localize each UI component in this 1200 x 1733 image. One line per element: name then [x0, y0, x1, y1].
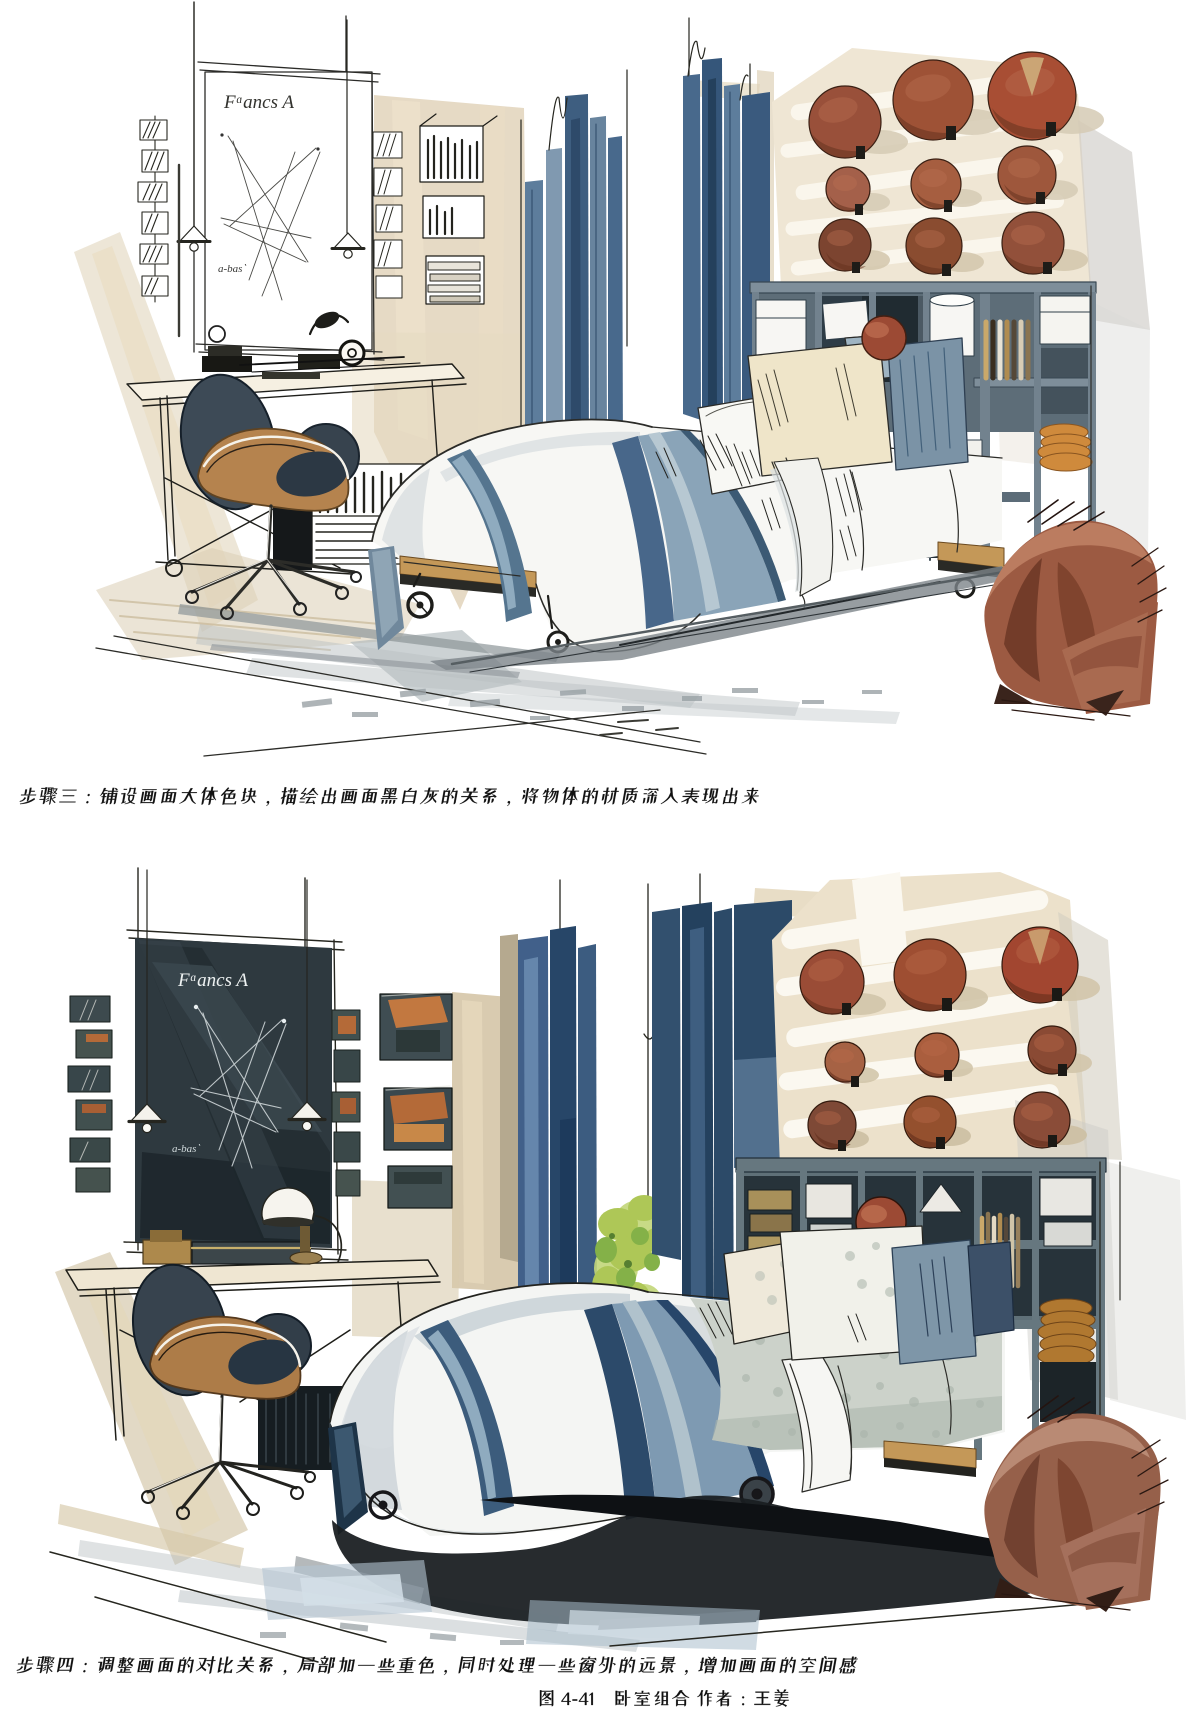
svg-text:a-bas‵: a-bas‵ — [218, 263, 246, 275]
svg-text:Fᵅancs A: Fᵅancs A — [223, 92, 294, 113]
svg-text:Fᵅancs A: Fᵅancs A — [177, 970, 248, 991]
svg-text:a-bas‵: a-bas‵ — [172, 1143, 200, 1155]
